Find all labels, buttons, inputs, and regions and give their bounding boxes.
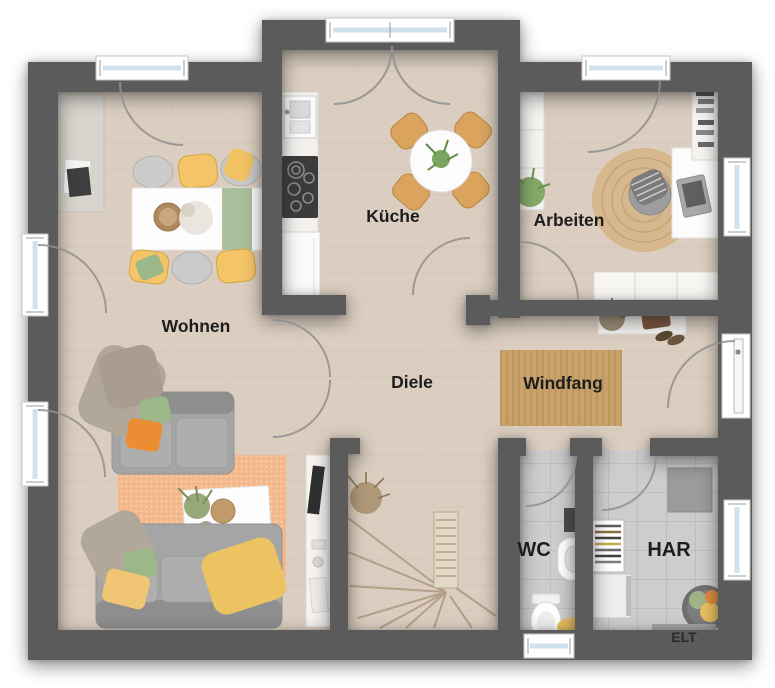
dining-chair-yellow3 [215,248,256,284]
window-wc-bottom [524,634,574,658]
wall-bottom [28,630,752,660]
tv-board [306,455,332,627]
wall-wohnen-kueche [262,20,282,315]
window-left-upper [22,234,48,316]
door-handle [735,349,740,354]
table-runner [222,188,252,250]
floorplan-drawing: Wohnen Küche Arbeiten Diele Windfang WC … [0,0,775,688]
sink-basin2 [290,121,310,133]
label-wohnen: Wohnen [162,316,231,336]
dining-chair-gray [133,156,173,188]
entrance-door [722,334,750,418]
washer-edge [626,576,631,616]
wall-kueche-arbeiten [498,20,520,318]
window-har-right [724,500,750,580]
wall-windfang [490,300,722,316]
rack-laundry [595,526,621,562]
sideboard-tall [58,94,104,212]
floorplan-page: Wohnen Küche Arbeiten Diele Windfang WC … [0,0,775,688]
table-flowers2 [181,203,195,217]
wall-strip3 [650,438,718,456]
laundry-yellow [700,602,720,622]
window-kueche [326,18,454,42]
office-sideboard [594,272,718,300]
sink-basin [290,101,310,118]
wall-strip1 [498,438,526,456]
label-elt: ELT [671,629,697,645]
tv-deco2 [313,557,323,567]
dining-chair-gray2 [172,252,212,284]
wall-wc-left [498,438,520,630]
label-windfang: Windfang [523,373,603,393]
table-bowl-inner [159,208,177,226]
pillow-orange [125,417,164,452]
wall-wc-har [575,438,593,630]
wall-stair-left [330,438,348,630]
window-left-lower [22,402,48,486]
label-diele: Diele [391,372,433,392]
washing-machine [593,574,631,618]
wall-kueche-bottom [262,295,346,315]
window-arbeiten-top [582,56,670,80]
table-dish [211,499,235,523]
label-arbeiten: Arbeiten [534,210,605,230]
window-arbeiten-right [724,158,750,236]
storage-cube [668,468,712,512]
label-wc: WC [517,539,550,561]
stairs-plant [350,482,382,514]
book [67,167,92,197]
laundry-orange [705,590,719,604]
window-wohnen-top [96,56,188,80]
dining-chair-yellow [177,153,218,189]
label-kueche: Küche [366,206,420,226]
label-har: HAR [647,539,691,561]
dining-set [128,147,263,285]
kitchen-counter [282,92,320,302]
drying-rack [592,520,624,572]
wall-strip2 [570,438,602,456]
wall-pillar [466,295,490,325]
faucet [285,110,290,115]
tv-deco3 [310,577,329,612]
tv-deco1 [312,540,326,549]
wall-left [28,62,58,660]
